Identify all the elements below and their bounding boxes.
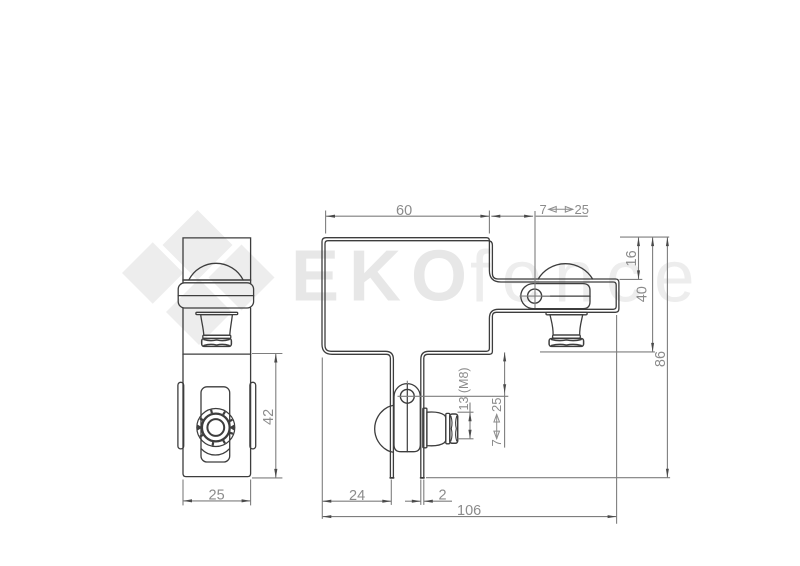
svg-text:24: 24 (349, 488, 365, 504)
svg-text:25: 25 (575, 202, 589, 217)
svg-text:42: 42 (261, 409, 277, 425)
svg-text:40: 40 (635, 286, 651, 302)
svg-text:7: 7 (489, 439, 504, 446)
svg-text:25: 25 (209, 487, 225, 503)
svg-text:60: 60 (396, 203, 412, 219)
svg-text:fence: fence (470, 237, 706, 318)
svg-text:13 (M8): 13 (M8) (457, 367, 471, 410)
svg-text:16: 16 (624, 250, 640, 266)
svg-text:7: 7 (540, 202, 547, 217)
svg-text:EKO: EKO (291, 237, 477, 317)
svg-text:86: 86 (653, 351, 669, 367)
svg-text:2: 2 (439, 487, 447, 503)
svg-text:106: 106 (457, 503, 481, 519)
svg-text:25: 25 (489, 398, 504, 412)
